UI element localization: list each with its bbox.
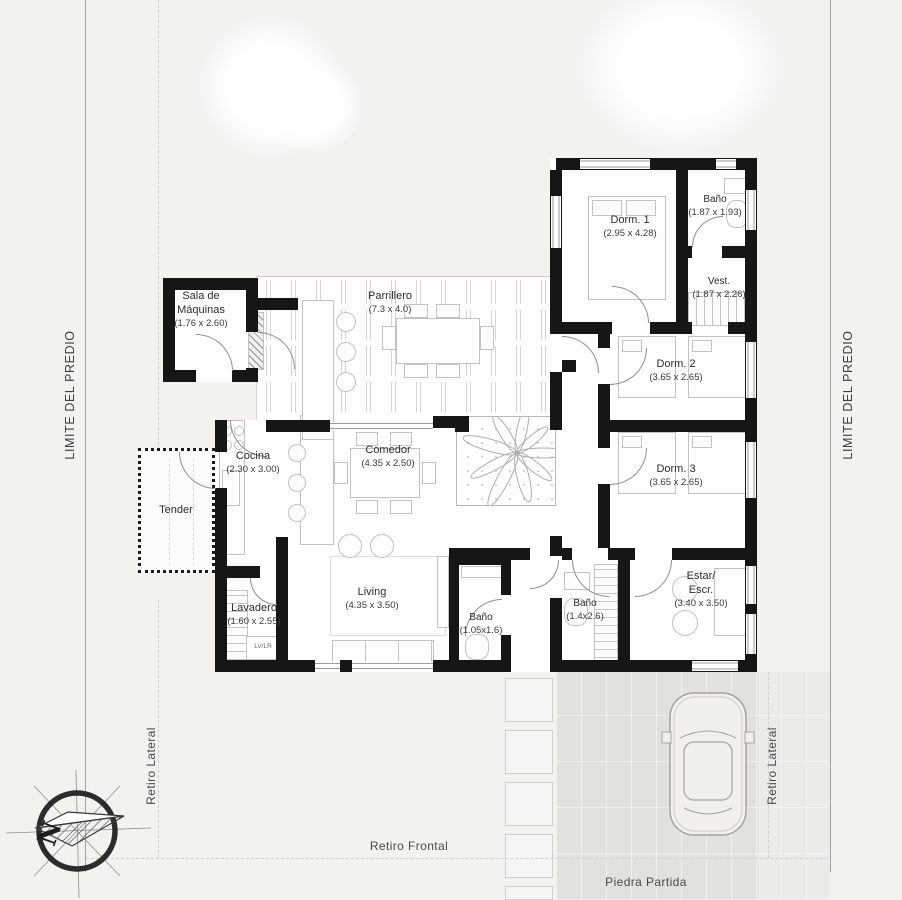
floor-plan-canvas: Sala de Máquinas (1.76 x 2.60) Parriller… (0, 0, 902, 900)
room-dims: (3.65 x 2.65) (626, 372, 726, 384)
wall-segment (163, 370, 196, 382)
room-label-dorm1: Dorm. 1 (2.95 x 4.28) (580, 214, 680, 240)
room-label-bano-suite: Baño (1.4x2.6) (552, 598, 618, 622)
faded-area (575, 0, 785, 155)
paver (505, 678, 553, 722)
wall-segment (562, 548, 572, 560)
furniture-outline (356, 500, 378, 514)
wall-segment (215, 420, 227, 452)
room-name: Comedor (336, 444, 440, 458)
room-dims: (1.87 x 1.93) (680, 207, 750, 219)
wall-segment (163, 278, 258, 290)
wall-segment (608, 548, 635, 560)
furniture-outline (288, 474, 306, 492)
room-dims: (4.35 x 2.50) (336, 458, 440, 470)
furniture-outline (336, 342, 356, 362)
room-name: Cocina (205, 450, 301, 464)
window (580, 159, 650, 169)
room-dims: (1.4x2.6) (552, 611, 618, 623)
paver (505, 730, 553, 774)
furniture-outline (288, 504, 306, 522)
wall-segment (455, 416, 469, 432)
room-dims: (2.30 x 3.00) (205, 464, 301, 476)
furniture-outline (404, 364, 428, 378)
boundary-label-left: LIMITE DEL PREDIO (63, 330, 77, 459)
room-name: Dorm. 1 (580, 214, 680, 228)
setback-lateral-label-left: Retiro Lateral (144, 727, 158, 805)
furniture-outline (370, 534, 394, 558)
room-label-parrillero: Parrillero (7.3 x 4.0) (330, 290, 450, 316)
window (315, 662, 340, 670)
room-name: Sala de Máquinas (156, 290, 246, 318)
furniture-outline (338, 534, 362, 558)
wall-segment (722, 246, 757, 258)
wall-segment (598, 384, 610, 448)
agave-plant (457, 417, 555, 505)
paver (505, 886, 553, 900)
wall-segment (246, 368, 258, 382)
wall-segment (598, 334, 610, 348)
property-line-left (85, 0, 86, 872)
room-label-bano-principal: Baño (1.05x1.6) (448, 612, 514, 636)
room-dims: (1.76 x 2.60) (156, 318, 246, 330)
room-dims: (4.35 x 3.50) (324, 600, 420, 612)
window (352, 662, 433, 670)
room-label-living: Living (4.35 x 3.50) (324, 586, 420, 612)
room-name: Baño (680, 194, 750, 207)
setback-line-front (86, 858, 828, 859)
room-label-tender: Tender (136, 504, 216, 518)
wall-segment (610, 420, 757, 432)
room-dims: (2.95 x 4.28) (580, 228, 680, 240)
furniture-outline (622, 436, 642, 448)
room-label-bano-dorm: Baño (1.87 x 1.93) (680, 194, 750, 218)
window (716, 159, 736, 169)
wall-segment (266, 420, 330, 432)
window (692, 661, 738, 671)
property-line-right (830, 0, 831, 872)
room-dims: (1.60 x 2.55) (208, 616, 300, 628)
furniture-outline (336, 372, 356, 392)
wall-segment (433, 660, 511, 672)
wall-segment (550, 548, 562, 556)
room-dims: (3.65 x 2.65) (626, 477, 726, 489)
wall-segment (688, 246, 692, 258)
furniture-outline (436, 364, 460, 378)
wall-segment (215, 488, 227, 672)
window (746, 614, 756, 654)
paver (505, 834, 553, 878)
driveway-material-label: Piedra Partida (605, 875, 687, 889)
room-label-comedor: Comedor (4.35 x 2.50) (336, 444, 440, 470)
window (551, 196, 561, 248)
furniture-outline (692, 436, 712, 448)
setback-line-left-upper (158, 0, 159, 450)
wall-segment (550, 536, 562, 548)
furniture-outline (390, 500, 412, 514)
furniture-outline (382, 326, 396, 350)
paver (505, 782, 553, 826)
wall-segment (728, 322, 757, 334)
setback-line-left-lower (158, 600, 159, 858)
room-label-lavadero: Lavadero (1.60 x 2.55) (208, 602, 300, 628)
tree-canopy (255, 55, 365, 155)
furniture-outline (692, 340, 712, 352)
wall-segment (215, 566, 260, 578)
room-name: Estar/ Escr. (652, 570, 750, 598)
laundry-units-label: LV/LR (246, 643, 280, 651)
wall-segment (501, 555, 511, 595)
courtyard (456, 416, 556, 506)
window (746, 342, 756, 398)
car-top-view (660, 688, 756, 840)
room-name: Living (324, 586, 420, 600)
room-name: Baño (448, 612, 514, 625)
room-name: Lavadero (208, 602, 300, 616)
room-label-vestidor: Vest. (1.87 x 2.26) (684, 276, 754, 300)
wall-segment (340, 660, 352, 672)
room-dims: (1.05x1.6) (448, 625, 514, 637)
room-name: Tender (136, 504, 216, 518)
wall-segment (598, 484, 610, 548)
wall-segment (215, 660, 315, 672)
setback-lateral-label-right: Retiro Lateral (765, 727, 779, 805)
furniture-outline (461, 566, 503, 578)
room-dims: (3.40 x 3.50) (652, 598, 750, 610)
wall-segment (650, 322, 692, 334)
wall-segment (449, 555, 459, 660)
room-label-estar: Estar/ Escr. (3.40 x 3.50) (652, 570, 750, 609)
window (746, 442, 756, 498)
furniture-outline (480, 326, 494, 350)
room-label-dorm2: Dorm. 2 (3.65 x 2.65) (626, 358, 726, 384)
window (330, 422, 433, 430)
furniture-outline (672, 610, 698, 636)
room-name: Dorm. 2 (626, 358, 726, 372)
room-dims: (7.3 x 4.0) (330, 304, 450, 316)
wall-segment (550, 322, 612, 334)
wall-segment (501, 635, 511, 660)
furniture-outline (465, 634, 489, 660)
setback-frontal-label: Retiro Frontal (370, 839, 448, 853)
furniture-outline (302, 300, 334, 440)
room-name: Vest. (684, 276, 754, 289)
room-name: Parrillero (330, 290, 450, 304)
boundary-label-right: LIMITE DEL PREDIO (841, 330, 855, 459)
room-name: Dorm. 3 (626, 463, 726, 477)
wall-segment (550, 372, 562, 430)
wall-segment (618, 560, 630, 672)
room-label-cocina: Cocina (2.30 x 3.00) (205, 450, 301, 476)
room-dims: (1.87 x 2.26) (684, 289, 754, 301)
room-name: Baño (552, 598, 618, 611)
wall-segment (246, 298, 298, 310)
room-label-sala-maquinas: Sala de Máquinas (1.76 x 2.60) (156, 290, 246, 329)
wall-segment (672, 548, 757, 560)
furniture-outline (396, 318, 480, 364)
wall-segment (550, 170, 562, 334)
room-label-dorm3: Dorm. 3 (3.65 x 2.65) (626, 463, 726, 489)
north-arrow-compass: N (6, 770, 151, 898)
